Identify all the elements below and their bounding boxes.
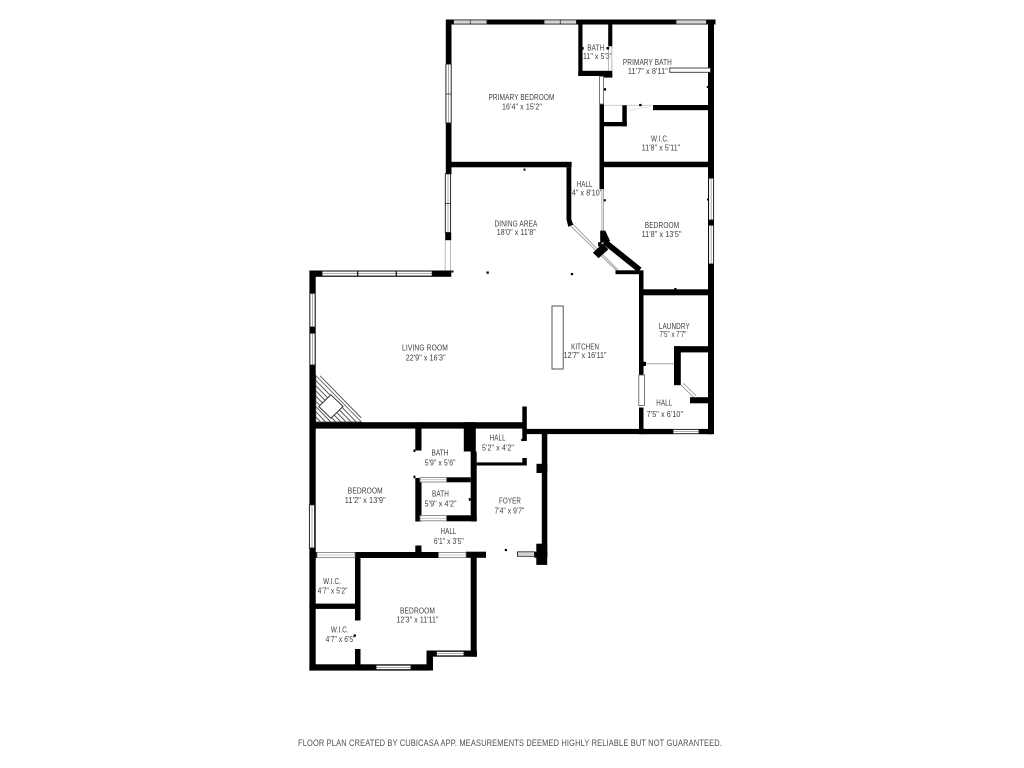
svg-text:11'8" x 5'11": 11'8" x 5'11" xyxy=(642,144,681,153)
svg-text:BATH: BATH xyxy=(432,489,449,498)
svg-text:W.I.C.: W.I.C. xyxy=(331,625,349,634)
svg-text:HALL: HALL xyxy=(441,527,457,536)
svg-text:7'5" x 7'7": 7'5" x 7'7" xyxy=(660,330,687,339)
svg-text:KITCHEN: KITCHEN xyxy=(571,342,599,351)
svg-text:HALL: HALL xyxy=(490,434,506,443)
svg-text:W.I.C.: W.I.C. xyxy=(651,134,669,143)
svg-text:BEDROOM: BEDROOM xyxy=(400,606,435,615)
svg-text:PRIMARY BATH: PRIMARY BATH xyxy=(623,58,672,67)
svg-text:FLOOR PLAN CREATED BY CUBICASA: FLOOR PLAN CREATED BY CUBICASA APP. MEAS… xyxy=(298,737,722,748)
svg-text:BEDROOM: BEDROOM xyxy=(348,487,383,496)
svg-text:12'7" x 16'11": 12'7" x 16'11" xyxy=(564,351,607,360)
svg-text:11" x 5'3": 11" x 5'3" xyxy=(583,52,613,61)
svg-text:5'2" x 4'2": 5'2" x 4'2" xyxy=(482,444,514,453)
svg-text:6'1" x 3'5": 6'1" x 3'5" xyxy=(434,537,464,546)
svg-text:4'7" x 6'5": 4'7" x 6'5" xyxy=(326,635,356,644)
svg-text:16'4" x 15'2": 16'4" x 15'2" xyxy=(502,102,542,111)
svg-text:5'9" x 5'6": 5'9" x 5'6" xyxy=(425,458,456,467)
svg-text:4'7" x 5'2": 4'7" x 5'2" xyxy=(318,587,348,596)
svg-text:PRIMARY BEDROOM: PRIMARY BEDROOM xyxy=(489,93,555,102)
svg-text:7'4" x 9'7": 7'4" x 9'7" xyxy=(495,507,525,516)
svg-text:LIVING ROOM: LIVING ROOM xyxy=(402,344,448,353)
svg-text:3'4" x 8'10": 3'4" x 8'10" xyxy=(566,188,602,197)
svg-text:18'0" x 11'8": 18'0" x 11'8" xyxy=(497,228,536,237)
svg-text:11'7" x 8'11": 11'7" x 8'11" xyxy=(628,67,668,76)
svg-text:W.I.C.: W.I.C. xyxy=(323,577,341,586)
svg-text:11'8" x 13'5": 11'8" x 13'5" xyxy=(642,230,682,239)
svg-text:12'3" x 11'11": 12'3" x 11'11" xyxy=(397,616,439,625)
svg-text:FOYER: FOYER xyxy=(499,496,521,505)
svg-text:22'9" x 16'3": 22'9" x 16'3" xyxy=(406,353,446,362)
svg-text:5'9" x 4'2": 5'9" x 4'2" xyxy=(425,499,457,508)
svg-text:BATH: BATH xyxy=(432,448,449,457)
svg-text:7'5" x 6'10": 7'5" x 6'10" xyxy=(647,410,684,419)
svg-text:HALL: HALL xyxy=(656,398,672,407)
svg-text:11'2" x 13'9": 11'2" x 13'9" xyxy=(345,496,386,505)
